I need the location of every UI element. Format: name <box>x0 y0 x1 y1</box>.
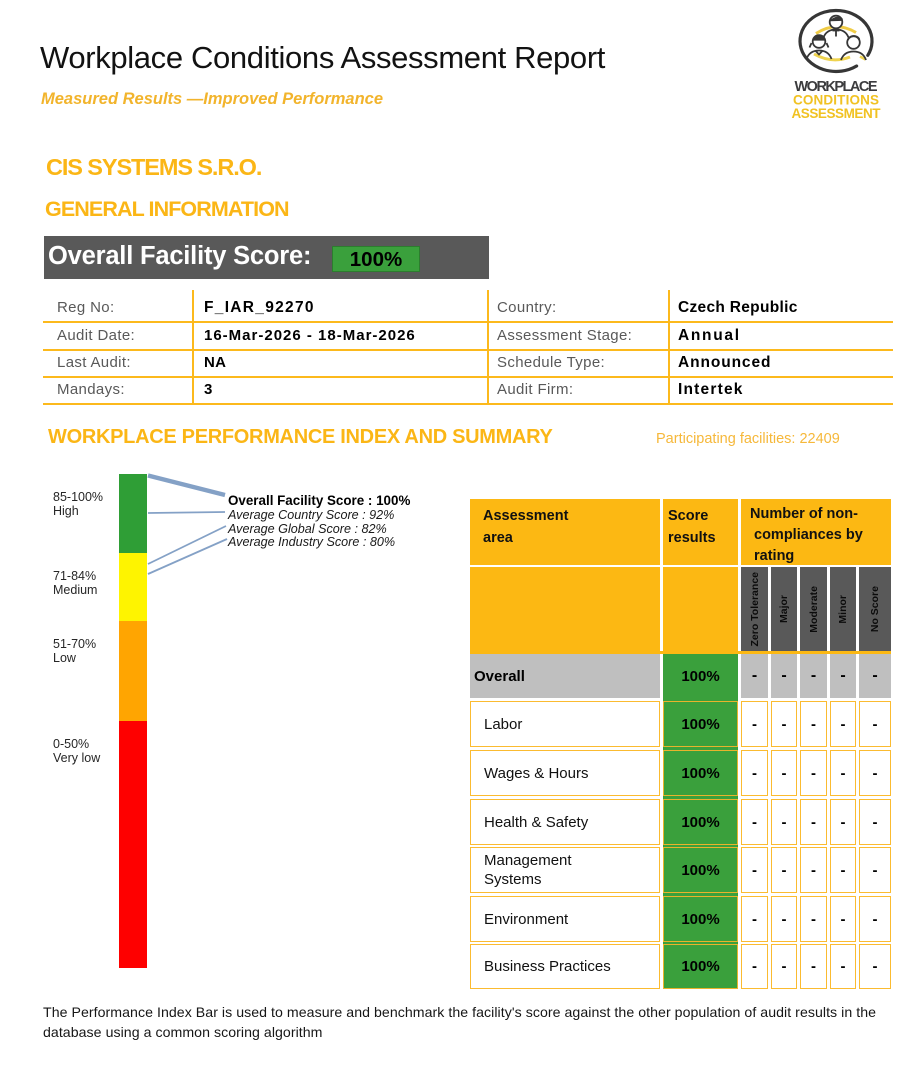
svg-text:ASSESSMENT: ASSESSMENT <box>792 106 882 121</box>
